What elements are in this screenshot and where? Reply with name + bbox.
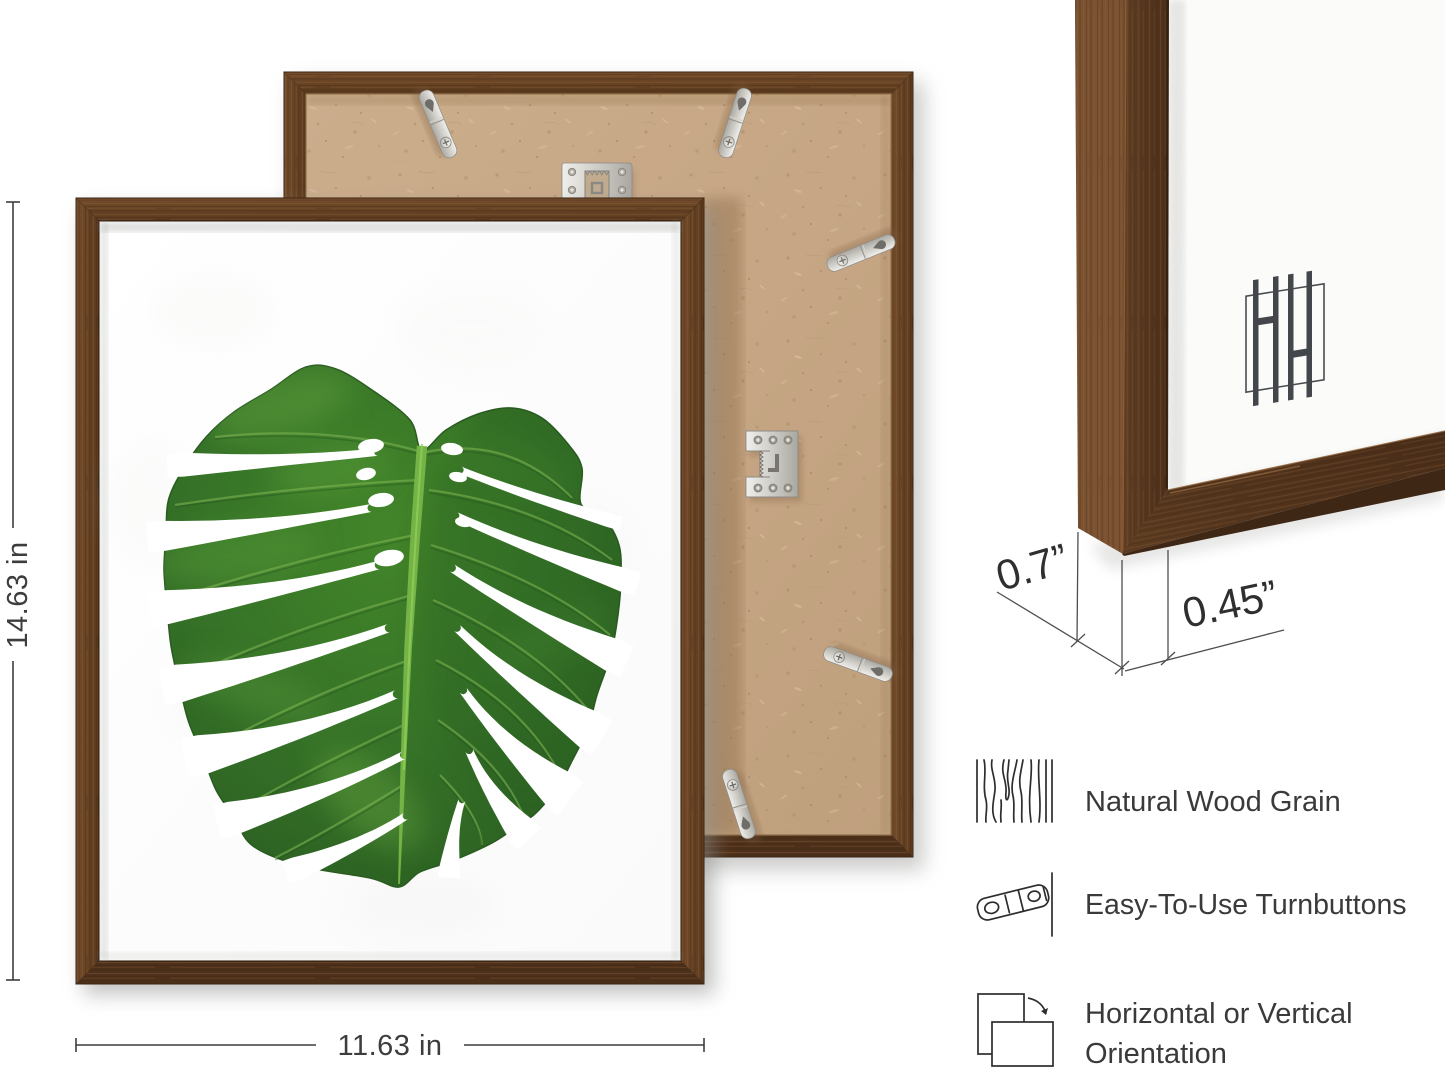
svg-text:Horizontal or Vertical: Horizontal or Vertical (1085, 998, 1353, 1030)
svg-text:Easy-To-Use Turnbuttons: Easy-To-Use Turnbuttons (1085, 889, 1407, 921)
svg-text:14.63 in: 14.63 in (2, 541, 34, 648)
svg-text:11.63 in: 11.63 in (337, 1030, 442, 1062)
svg-text:Orientation: Orientation (1085, 1038, 1227, 1069)
svg-text:Natural Wood Grain: Natural Wood Grain (1085, 786, 1341, 818)
